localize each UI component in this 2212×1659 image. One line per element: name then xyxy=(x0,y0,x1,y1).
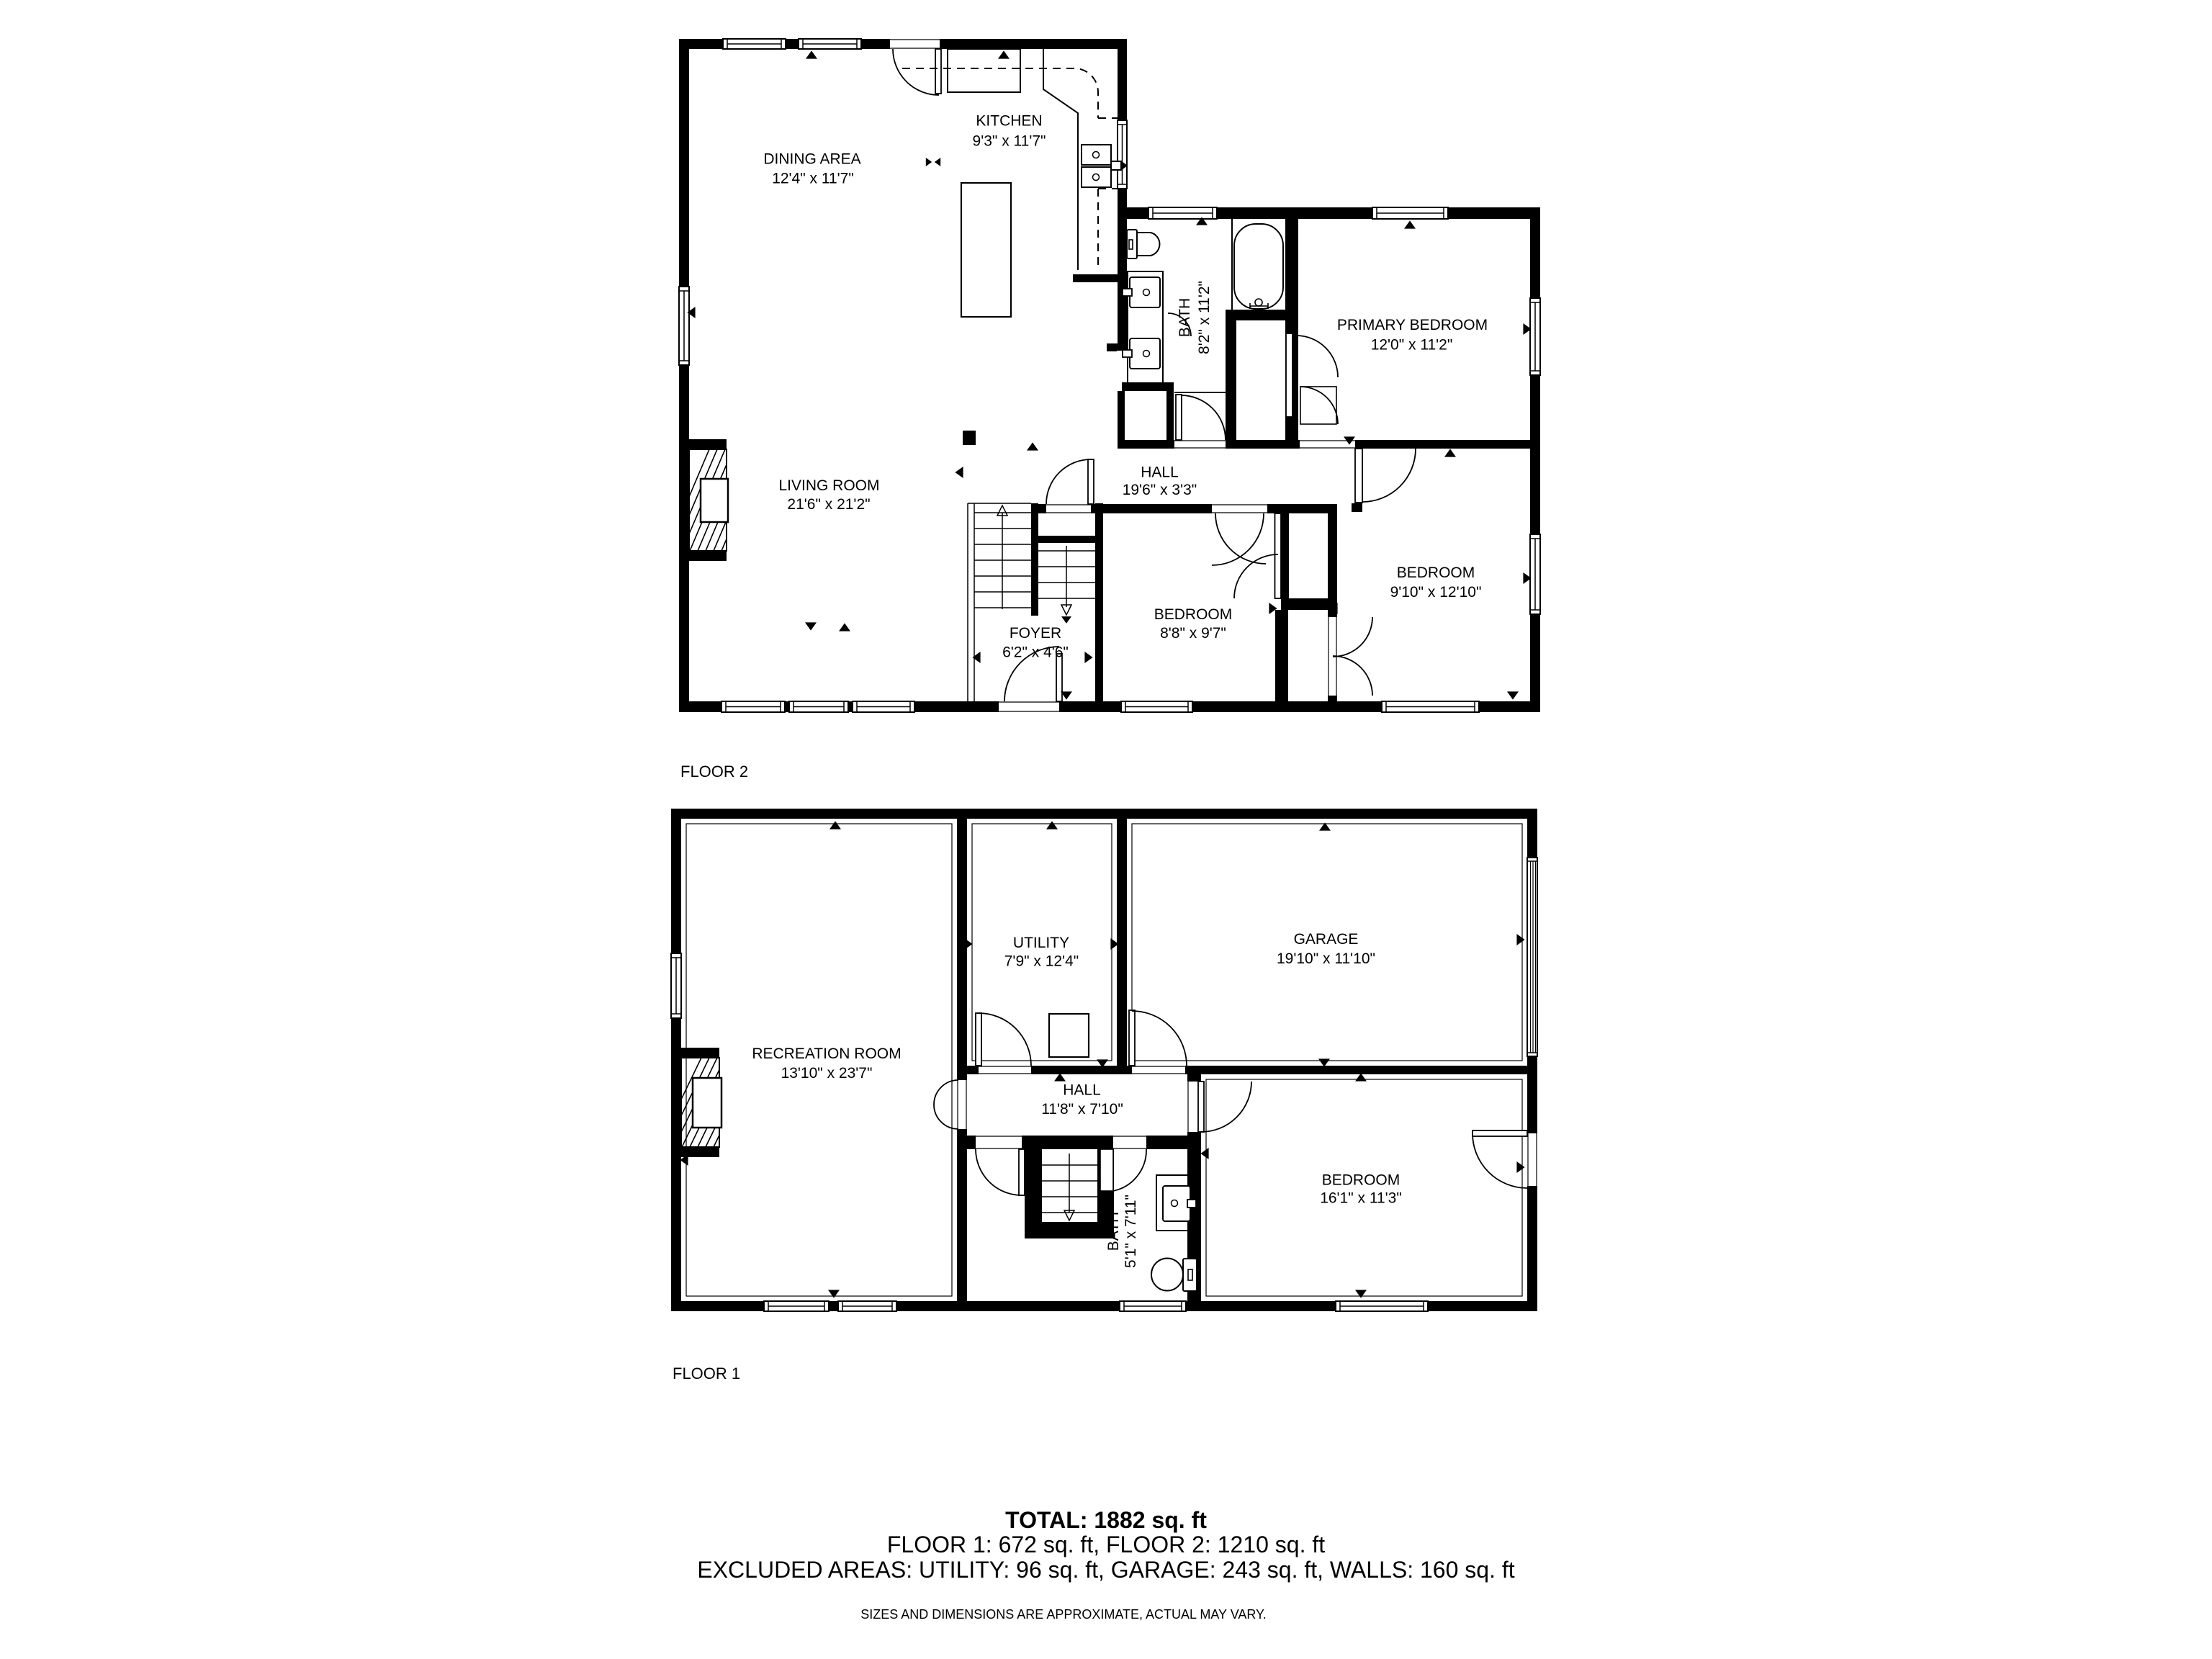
svg-text:9'3" x 11'7": 9'3" x 11'7" xyxy=(973,133,1046,150)
svg-text:19'6" x 3'3": 19'6" x 3'3" xyxy=(1123,482,1197,498)
svg-text:19'10" x 11'10": 19'10" x 11'10" xyxy=(1277,950,1375,967)
svg-text:HALL: HALL xyxy=(1141,464,1179,481)
svg-text:UTILITY: UTILITY xyxy=(1013,935,1069,951)
svg-text:9'10" x 12'10": 9'10" x 12'10" xyxy=(1390,584,1482,601)
svg-text:RECREATION ROOM: RECREATION ROOM xyxy=(752,1046,901,1062)
svg-text:8'8" x 9'7": 8'8" x 9'7" xyxy=(1160,625,1226,642)
svg-text:12'4" x 11'7": 12'4" x 11'7" xyxy=(772,171,854,187)
svg-text:BEDROOM: BEDROOM xyxy=(1322,1172,1401,1189)
svg-text:6'2" x 4'6": 6'2" x 4'6" xyxy=(1002,644,1069,661)
svg-text:GARAGE: GARAGE xyxy=(1294,931,1359,948)
svg-text:BATH: BATH xyxy=(1177,298,1193,337)
svg-text:FLOOR 1: 672 sq. ft, FLOOR 2:: FLOOR 1: 672 sq. ft, FLOOR 2: 1210 sq. f… xyxy=(887,1532,1325,1557)
svg-text:8'2" x 11'2": 8'2" x 11'2" xyxy=(1196,281,1213,354)
svg-text:TOTAL: 1882 sq. ft: TOTAL: 1882 sq. ft xyxy=(1005,1507,1207,1533)
svg-text:5'1" x 7'11": 5'1" x 7'11" xyxy=(1123,1195,1139,1268)
svg-text:FLOOR 1: FLOOR 1 xyxy=(673,1364,740,1382)
svg-text:21'6" x 21'2": 21'6" x 21'2" xyxy=(787,496,870,513)
svg-text:LIVING ROOM: LIVING ROOM xyxy=(778,477,879,494)
svg-text:13'10" x 23'7": 13'10" x 23'7" xyxy=(781,1065,873,1082)
svg-text:BEDROOM: BEDROOM xyxy=(1397,565,1475,581)
svg-text:EXCLUDED AREAS: UTILITY: 96 sq: EXCLUDED AREAS: UTILITY: 96 sq. ft, GARA… xyxy=(697,1557,1514,1583)
svg-text:FOYER: FOYER xyxy=(1010,625,1061,642)
svg-text:BEDROOM: BEDROOM xyxy=(1154,606,1233,623)
svg-text:12'0" x 11'2": 12'0" x 11'2" xyxy=(1371,337,1453,354)
svg-text:16'1" x 11'3": 16'1" x 11'3" xyxy=(1320,1190,1402,1207)
svg-text:DINING AREA: DINING AREA xyxy=(763,151,860,168)
svg-text:11'8" x 7'10": 11'8" x 7'10" xyxy=(1041,1101,1123,1118)
svg-text:7'9" x 12'4": 7'9" x 12'4" xyxy=(1004,953,1079,970)
svg-text:KITCHEN: KITCHEN xyxy=(976,113,1042,130)
svg-text:FLOOR 2: FLOOR 2 xyxy=(680,763,748,781)
svg-text:SIZES AND DIMENSIONS ARE APPRO: SIZES AND DIMENSIONS ARE APPROXIMATE, AC… xyxy=(860,1607,1267,1622)
svg-text:HALL: HALL xyxy=(1063,1082,1101,1099)
svg-text:PRIMARY BEDROOM: PRIMARY BEDROOM xyxy=(1337,317,1488,333)
svg-text:BATH: BATH xyxy=(1105,1212,1122,1251)
